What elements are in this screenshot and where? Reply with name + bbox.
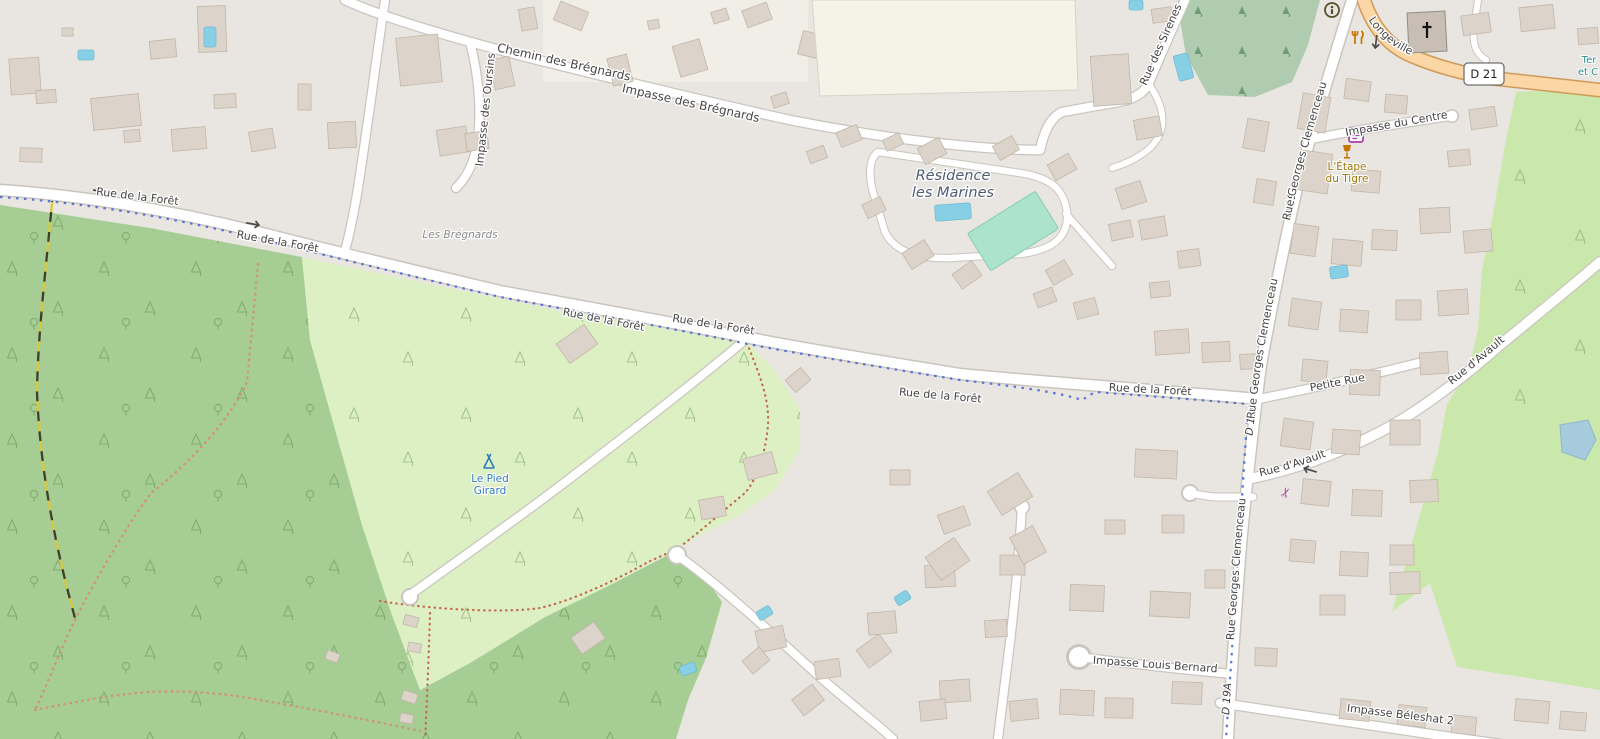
building: [647, 19, 660, 30]
campsite-label: Girard: [474, 485, 507, 497]
building: [1514, 699, 1550, 724]
building: [407, 642, 421, 653]
road-ref-label: D 19A: [1220, 683, 1234, 716]
building: [1451, 715, 1477, 735]
building: [1331, 239, 1363, 267]
building: [1519, 4, 1555, 31]
building: [20, 148, 42, 163]
building: [985, 619, 1008, 637]
building: [1134, 449, 1177, 479]
building: [1201, 341, 1230, 362]
neighbourhood-label: Résidence: [916, 168, 991, 184]
building: [814, 658, 841, 679]
building: [1162, 515, 1184, 533]
building: [1331, 429, 1361, 455]
building: [867, 611, 897, 635]
leisure-label-clipped: Ter: [1581, 55, 1598, 66]
building: [1396, 300, 1421, 320]
neighbourhood-label: les Marines: [912, 185, 995, 201]
building: [1390, 571, 1421, 594]
poi-label: du Tigre: [1326, 173, 1369, 185]
building: [90, 94, 141, 131]
building: [890, 470, 910, 485]
swimming-pool: [78, 50, 94, 60]
building: [1288, 298, 1322, 330]
building: [1177, 249, 1201, 269]
building: [1090, 54, 1131, 107]
route-shield-text: D 21: [1470, 67, 1497, 81]
building: [1105, 520, 1125, 534]
building: [1289, 539, 1316, 563]
building: [436, 126, 470, 156]
building: [1339, 309, 1368, 333]
building: [1390, 545, 1414, 565]
leisure-label-clipped: et C: [1578, 67, 1598, 78]
building: [1070, 584, 1105, 611]
campsite-label: Le Pied: [471, 473, 509, 485]
building: [327, 121, 356, 148]
building: [1340, 552, 1369, 577]
building: [149, 39, 177, 60]
building: [1577, 27, 1598, 44]
swimming-pool: [204, 27, 216, 47]
building: [1133, 116, 1162, 140]
building: [36, 89, 57, 103]
building: [1172, 681, 1203, 704]
hamlet-label: Les Brégnards: [422, 229, 498, 241]
building: [298, 84, 311, 110]
building: [1105, 698, 1133, 718]
poi-label: L'Étape: [1327, 160, 1366, 173]
building: [1205, 570, 1225, 588]
building: [518, 7, 538, 31]
building: [1419, 207, 1450, 234]
building: [1301, 479, 1331, 507]
building: [1009, 699, 1039, 722]
svg-text:D 19A: D 19A: [1220, 683, 1234, 716]
building: [1149, 281, 1170, 298]
building: [1243, 118, 1270, 151]
building: [123, 129, 140, 143]
building: [1461, 12, 1492, 36]
building: [1469, 106, 1498, 129]
building: [919, 699, 947, 722]
building: [1384, 94, 1407, 114]
building: [9, 57, 41, 95]
swimming-pool: [1329, 265, 1348, 279]
building: [1320, 595, 1345, 615]
building: [1059, 689, 1094, 716]
route-shield-d21: D 21: [1464, 63, 1504, 85]
swimming-pool: [934, 203, 971, 221]
map-canvas[interactable]: ✂ Rue de la Forêt Rue de la Forêt Rue de…: [0, 0, 1600, 739]
building: [698, 496, 726, 520]
building: [1419, 351, 1448, 375]
building: [1352, 489, 1383, 516]
building: [1138, 216, 1167, 240]
building: [1463, 229, 1493, 253]
map-svg: ✂ Rue de la Forêt Rue de la Forêt Rue de…: [0, 0, 1600, 739]
building: [1559, 711, 1586, 731]
building: [1255, 648, 1278, 667]
building: [1344, 78, 1372, 101]
large-hall-building: [812, 0, 1078, 96]
building: [1280, 418, 1314, 450]
building: [1390, 420, 1420, 445]
building: [62, 28, 73, 36]
building: [1253, 179, 1277, 206]
building: [214, 93, 237, 108]
building: [1154, 329, 1190, 355]
building: [1447, 149, 1471, 167]
building: [1290, 223, 1319, 256]
building: [1410, 480, 1439, 503]
building: [248, 128, 275, 152]
building: [396, 34, 443, 86]
building: [1437, 289, 1469, 316]
building: [1371, 229, 1397, 250]
swimming-pool: [1129, 0, 1143, 10]
building: [171, 127, 207, 152]
building: [1149, 591, 1190, 618]
